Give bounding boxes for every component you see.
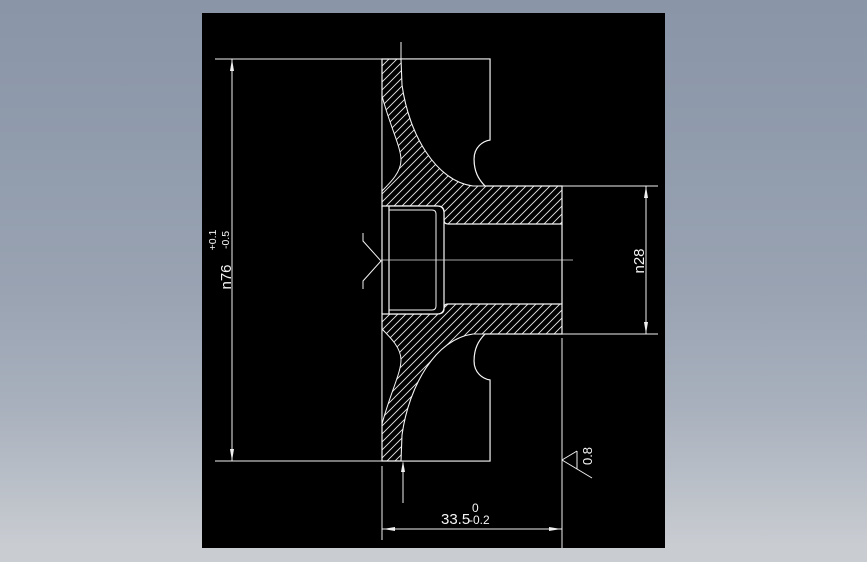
dia76-tol-lower: -0.5 [220,231,232,249]
arrow-up [644,186,648,198]
part-section [382,42,562,461]
arrow-down [644,322,648,334]
length-value: 33.5 [441,511,470,528]
drawing-svg: n76 +0.1 -0.5 n28 33.5 0 [202,13,665,548]
dia76-tol-upper: +0.1 [207,229,219,250]
drawing-canvas[interactable]: n76 +0.1 -0.5 n28 33.5 0 [202,13,665,548]
bottom-strip [0,548,867,562]
arrow-left [383,527,395,531]
surface-check-icon [363,233,381,289]
dimension-dia76: n76 +0.1 -0.5 [207,59,382,461]
arrow-up [230,59,234,71]
roughness-value: 0.8 [580,447,595,465]
arrow-down [230,449,234,461]
length-tol-lower: -0.2 [469,513,490,527]
leader-arrow [401,461,405,503]
dia28-value: n28 [631,248,648,273]
roughness-symbol: 0.8 [562,447,595,478]
dia76-value: n76 [218,264,235,289]
cad-viewer-desktop: n76 +0.1 -0.5 n28 33.5 0 [0,0,867,562]
dimension-dia28: n28 [562,186,658,334]
arrow-right [549,527,561,531]
